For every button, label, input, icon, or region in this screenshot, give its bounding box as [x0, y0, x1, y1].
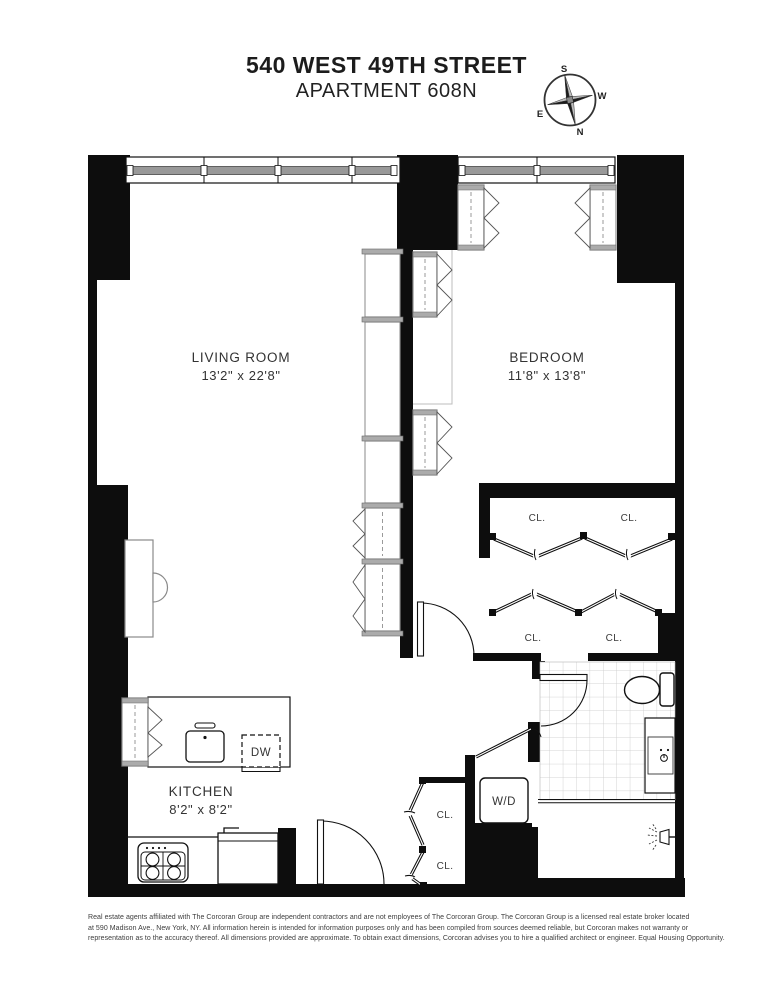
- vanity-sink: [645, 718, 675, 793]
- windows: [126, 157, 615, 183]
- storage-unit: [365, 322, 400, 436]
- page-title: 540 WEST 49TH STREET: [0, 52, 773, 79]
- closet-label: CL.: [525, 633, 542, 644]
- shower-head-icon: [647, 823, 675, 851]
- entry-door: [318, 820, 385, 884]
- wall-closet-bottom-west: [473, 653, 541, 661]
- wall-bedroom-south: [487, 483, 684, 498]
- title-block: 540 WEST 49TH STREET APARTMENT 608N: [0, 52, 773, 104]
- refrigerator: [218, 828, 278, 884]
- living-room-console: [125, 540, 168, 637]
- living-room-dims: 13'2" x 22'8": [201, 368, 280, 383]
- bedroom-label: BEDROOM: [509, 350, 584, 365]
- storage-unit: [365, 441, 400, 503]
- disclaimer-line: representation as to the accuracy thereo…: [88, 934, 728, 945]
- wall-closet-bottom-east: [588, 653, 675, 661]
- wall-left-thin: [88, 155, 97, 488]
- wall-right: [675, 155, 684, 897]
- closet-label: CL.: [437, 861, 454, 872]
- wall-left-thick: [88, 485, 128, 897]
- disclaimer-line: Real estate agents affiliated with The C…: [88, 913, 728, 924]
- floorplan-page: DW LIVING ROOM 13'2" x: [0, 0, 773, 1000]
- closet-label: CL.: [437, 810, 454, 821]
- kitchen-dims: 8'2" x 8'2": [169, 802, 232, 817]
- living-room-window-band: [126, 157, 400, 183]
- dishwasher-label: DW: [251, 747, 271, 759]
- wall-top-right-block: [617, 155, 684, 283]
- doors: [318, 602, 475, 884]
- living-room-label: LIVING ROOM: [192, 350, 291, 365]
- disclaimer-text: Real estate agents affiliated with The C…: [88, 913, 728, 945]
- living-room-storage-column: [353, 249, 403, 636]
- storage-unit: [365, 254, 400, 317]
- bedroom-door: [418, 602, 475, 656]
- wall-bath-bottom: [532, 878, 685, 897]
- disclaimer-line: at 590 Madison Ave., New York, NY. All i…: [88, 924, 728, 935]
- bedroom-dims: 11'8" x 13'8": [508, 368, 586, 383]
- wall-closet-west-stub: [479, 483, 490, 558]
- tub-divider: [538, 800, 675, 803]
- kitchen-label: KITCHEN: [169, 784, 234, 799]
- wall-entry-stub: [278, 828, 296, 888]
- bathroom: [538, 662, 675, 851]
- wall-hall-closet-top: [419, 777, 467, 783]
- wall-below-wd: [475, 823, 532, 887]
- wall-center-divider: [400, 250, 413, 658]
- closet-label: CL.: [606, 633, 623, 644]
- wall-closet-right-chunk: [658, 613, 675, 654]
- wall-wd-left: [465, 755, 475, 893]
- compass-east: E: [537, 109, 543, 120]
- wall-center-top-block: [397, 155, 458, 250]
- closet-label: CL.: [621, 513, 638, 524]
- washer-dryer-label: W/D: [492, 796, 516, 808]
- stove: [138, 843, 188, 882]
- bedroom-window-band: [458, 157, 615, 183]
- closet-label: CL.: [529, 513, 546, 524]
- dishwasher: DW: [242, 735, 280, 772]
- page-subtitle: APARTMENT 608N: [0, 79, 773, 104]
- console-curve: [153, 573, 168, 602]
- floorplan-drawing: DW LIVING ROOM 13'2" x: [0, 0, 773, 1000]
- wardrobe-door-triangles-left: [353, 509, 365, 632]
- compass-north: N: [577, 127, 584, 138]
